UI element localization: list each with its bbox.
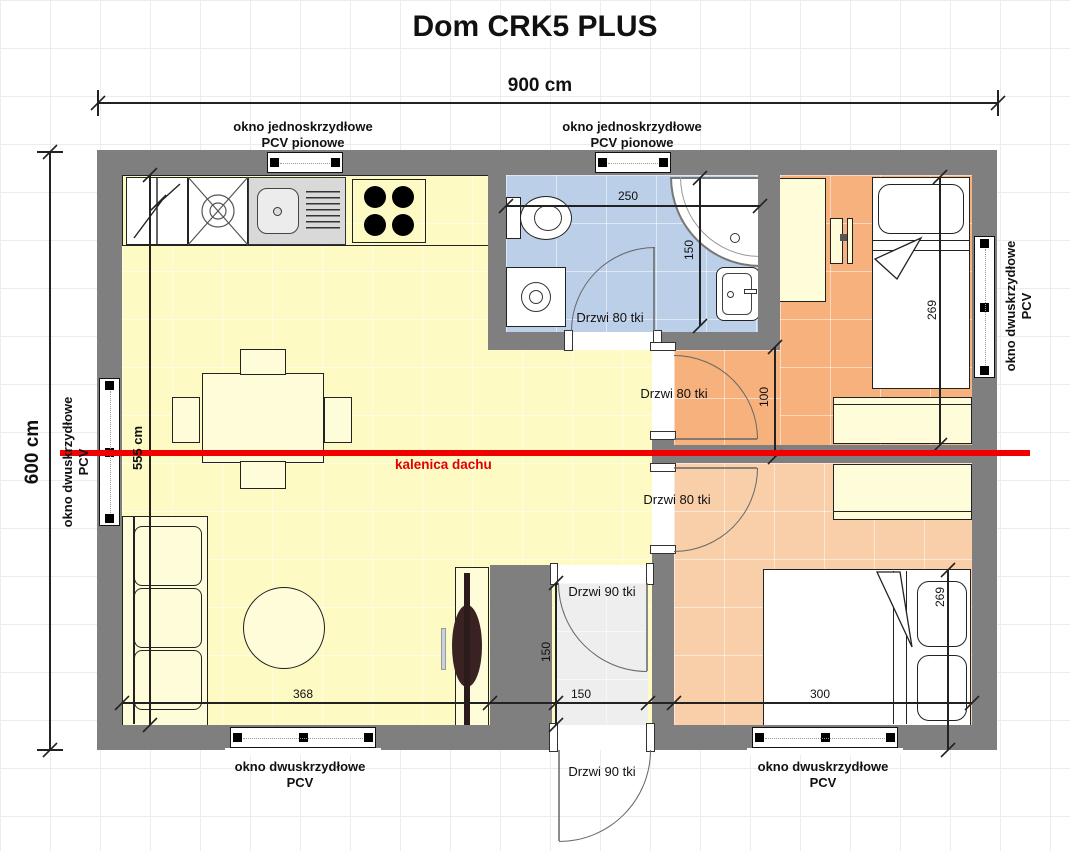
label-line: PCV pionowe	[522, 135, 742, 151]
dim-hall-width: 150	[551, 687, 611, 701]
label-line: okno dwuskrzydłowe	[1003, 196, 1019, 416]
label-line: okno jednoskrzydłowe	[193, 119, 413, 135]
label-line: PCV pionowe	[193, 135, 413, 151]
label-window-right: okno dwuskrzydłowe PCV	[1003, 196, 1035, 416]
label-door-bedroom-top: Drzwi 80 tki	[599, 386, 749, 401]
dim-bedroom-bottom-width: 300	[790, 687, 850, 701]
label-line: PCV	[713, 775, 933, 791]
label-window-top-right: okno jednoskrzydłowe PCV pionowe	[522, 119, 742, 151]
dim-total-width: 900 cm	[480, 75, 600, 97]
label-line: PCV	[76, 352, 92, 572]
label-roof-ridge: kalenica dachu	[395, 457, 492, 472]
fridge-symbol	[134, 177, 180, 245]
dim-bathroom-depth: 150	[682, 220, 696, 280]
roof-ridge-line	[60, 450, 1030, 456]
label-door-bedroom-bottom: Drzwi 80 tki	[602, 492, 752, 507]
door-leaves	[559, 247, 757, 841]
dim-bed-bottom-length: 269	[933, 567, 947, 627]
label-door-hall: Drzwi 90 tki	[527, 584, 677, 599]
label-window-bottom-left: okno dwuskrzydłowe PCV	[190, 759, 410, 791]
label-line: okno dwuskrzydłowe	[60, 352, 76, 572]
blanket-folds	[875, 238, 921, 647]
label-window-left: okno dwuskrzydłowe PCV	[60, 352, 92, 572]
dim-living-width: 368	[273, 687, 333, 701]
dimension-ticks	[43, 96, 1005, 757]
floor-plan: Dom CRK5 PLUS 900 cm 600 cm 555 cm okno …	[0, 0, 1070, 851]
label-line: PCV	[1019, 196, 1035, 416]
dim-hall-depth: 150	[539, 622, 553, 682]
dim-bed-top-length: 269	[925, 280, 939, 340]
dim-door-offset: 100	[757, 367, 771, 427]
label-door-entrance: Drzwi 90 tki	[527, 764, 677, 779]
label-line: okno jednoskrzydłowe	[522, 119, 742, 135]
label-line: PCV	[190, 775, 410, 791]
label-line: okno dwuskrzydłowe	[713, 759, 933, 775]
kitchen-unit-symbol	[188, 177, 248, 245]
dim-bathroom-width: 250	[598, 189, 658, 203]
dim-living-height: 555 cm	[130, 413, 146, 483]
label-window-top-left: okno jednoskrzydłowe PCV pionowe	[193, 119, 413, 151]
label-line: okno dwuskrzydłowe	[190, 759, 410, 775]
label-door-bathroom: Drzwi 80 tki	[535, 310, 685, 325]
dim-total-height: 600 cm	[22, 397, 44, 507]
label-window-bottom-right: okno dwuskrzydłowe PCV	[713, 759, 933, 791]
page-title: Dom CRK5 PLUS	[0, 10, 1070, 44]
